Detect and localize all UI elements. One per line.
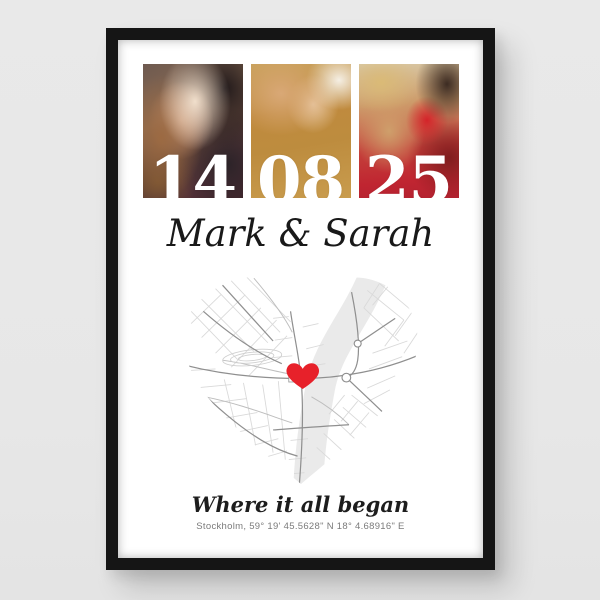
poster: 14 08 25 Mark & Sarah xyxy=(118,40,483,558)
date-day: 14 xyxy=(143,149,243,198)
couple-names: Mark & Sarah xyxy=(167,206,435,260)
map-roundabout-1 xyxy=(341,373,350,382)
date-year: 25 xyxy=(359,149,459,198)
photo-couple-with-rose: 25 xyxy=(359,64,459,198)
heart-map xyxy=(170,266,432,491)
map-roundabout-2 xyxy=(354,340,361,347)
photo-couple-kissing: 14 xyxy=(143,64,243,198)
poster-frame: 14 08 25 Mark & Sarah xyxy=(106,28,495,570)
tagline: Where it all began xyxy=(192,492,409,517)
photo-strip: 14 08 25 xyxy=(143,64,459,198)
heart-map-svg xyxy=(170,266,432,491)
date-month: 08 xyxy=(251,149,351,198)
mockup-background: 14 08 25 Mark & Sarah xyxy=(0,0,600,600)
location-coordinates: Stockholm, 59° 19' 45.5628" N 18° 4.6891… xyxy=(196,521,404,532)
photo-pinky-promise-hands: 08 xyxy=(251,64,351,198)
